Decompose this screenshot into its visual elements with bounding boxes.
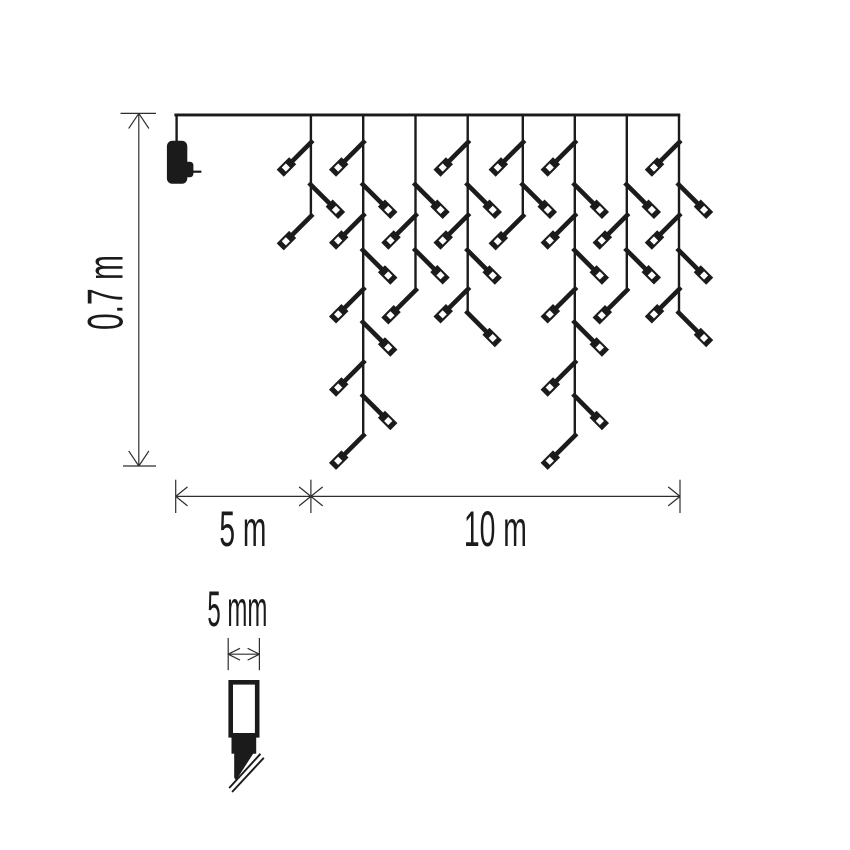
svg-text:5 m: 5 m: [219, 501, 266, 557]
svg-text:0.7 m: 0.7 m: [78, 255, 134, 330]
svg-text:10 m: 10 m: [464, 501, 527, 557]
svg-text:5 mm: 5 mm: [207, 581, 267, 637]
